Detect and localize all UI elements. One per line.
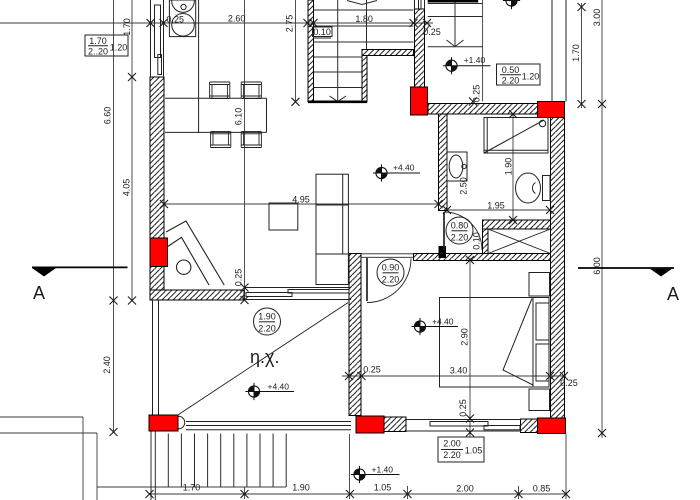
- svg-text:0.25: 0.25: [423, 27, 441, 37]
- svg-text:4.95: 4.95: [292, 195, 310, 205]
- svg-text:A: A: [667, 284, 679, 304]
- svg-text:3.00: 3.00: [592, 9, 602, 27]
- svg-text:+4.40: +4.40: [432, 317, 454, 327]
- svg-text:0.10: 0.10: [472, 232, 482, 250]
- svg-text:0.10: 0.10: [313, 27, 331, 37]
- svg-text:1.90: 1.90: [504, 158, 514, 176]
- svg-text:1.80: 1.80: [355, 14, 373, 24]
- svg-text:2.20: 2.20: [451, 233, 469, 243]
- svg-text:0.80: 0.80: [451, 221, 469, 231]
- svg-text:1.70: 1.70: [122, 18, 132, 36]
- svg-text:0.85: 0.85: [533, 484, 551, 494]
- svg-text:2.20: 2.20: [382, 275, 400, 285]
- svg-text:2..20: 2..20: [88, 47, 108, 57]
- svg-text:+1.40: +1.40: [464, 55, 486, 65]
- svg-text:1.70: 1.70: [183, 483, 201, 493]
- svg-text:6.60: 6.60: [103, 107, 113, 125]
- svg-text:2.00: 2.00: [443, 439, 461, 449]
- svg-text:1.20: 1.20: [522, 72, 540, 82]
- svg-text:1.90: 1.90: [258, 312, 276, 322]
- svg-text:1.05: 1.05: [374, 483, 392, 493]
- svg-text:2.50: 2.50: [459, 177, 469, 195]
- svg-text:η.χ.: η.χ.: [250, 347, 279, 367]
- svg-text:1.90: 1.90: [292, 483, 310, 493]
- svg-text:+1.40: +1.40: [372, 465, 394, 475]
- svg-text:+4.40: +4.40: [393, 163, 415, 173]
- svg-text:3.40: 3.40: [450, 366, 468, 376]
- svg-text:0.90: 0.90: [382, 263, 400, 273]
- svg-text:0.25: 0.25: [560, 378, 578, 388]
- svg-text:6.10: 6.10: [234, 108, 244, 126]
- svg-text:0.25: 0.25: [234, 269, 244, 287]
- svg-text:0.25: 0.25: [472, 85, 482, 103]
- svg-text:+4.40: +4.40: [268, 382, 290, 392]
- svg-text:1.95: 1.95: [487, 201, 505, 211]
- svg-text:2.20: 2.20: [502, 76, 520, 86]
- svg-text:2.20: 2.20: [258, 324, 276, 334]
- svg-text:2.40: 2.40: [102, 356, 112, 374]
- svg-text:2.60: 2.60: [228, 14, 246, 24]
- svg-text:2.90: 2.90: [460, 328, 470, 346]
- svg-text:0.50: 0.50: [502, 65, 520, 75]
- svg-text:1.70: 1.70: [89, 36, 107, 46]
- svg-text:0.25: 0.25: [363, 365, 381, 375]
- svg-text:2.20: 2.20: [443, 450, 461, 460]
- svg-text:1.05: 1.05: [465, 446, 483, 456]
- svg-text:1.70: 1.70: [571, 44, 581, 62]
- svg-text:0.25: 0.25: [167, 15, 185, 25]
- svg-text:1.20: 1.20: [110, 43, 128, 53]
- svg-text:2.75: 2.75: [285, 15, 295, 33]
- svg-text:2.00: 2.00: [456, 484, 474, 494]
- svg-text:0.25: 0.25: [458, 399, 468, 417]
- svg-text:6.00: 6.00: [592, 257, 602, 275]
- svg-text:A: A: [33, 283, 45, 303]
- svg-text:4.05: 4.05: [122, 179, 132, 197]
